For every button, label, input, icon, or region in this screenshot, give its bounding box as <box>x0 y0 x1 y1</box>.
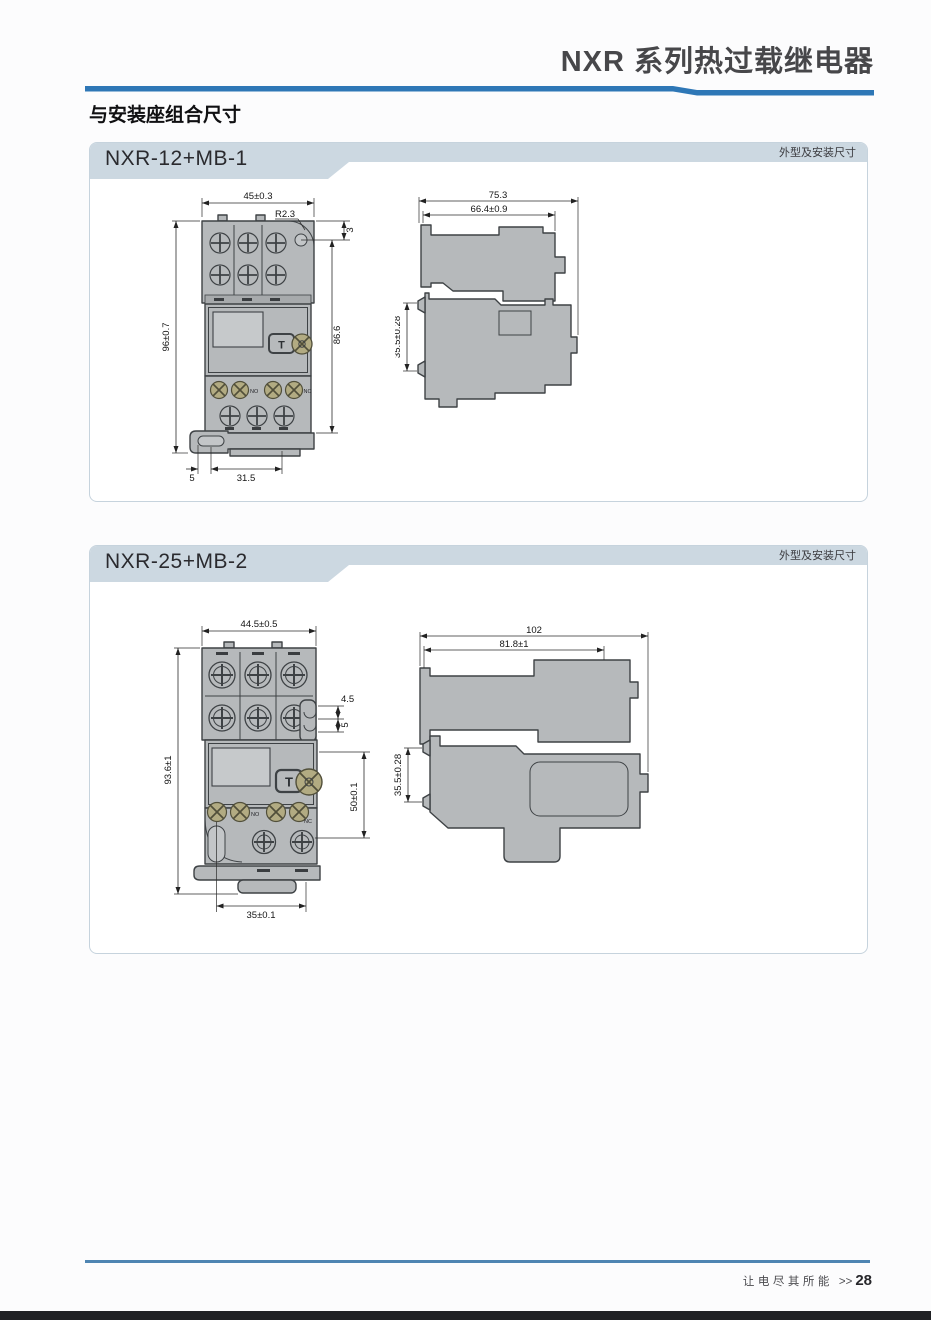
din-rail-hook <box>418 361 425 377</box>
din-rail-hook <box>423 794 430 810</box>
terminal-screw <box>266 233 286 253</box>
nxr25-side-view-drawing: 102 81.8±1 35.5±0.28 <box>390 624 670 876</box>
nxr12-side-view-drawing: 75.3 66.4±0.9 35.5±0.28 <box>395 189 607 429</box>
device-side-body <box>418 225 577 407</box>
dim-label-width: 44.5±0.5 <box>241 619 278 630</box>
aux-terminal-screw <box>232 382 249 399</box>
footer-arrows: >> <box>839 1276 852 1288</box>
device-front-body: T NO NC <box>190 215 314 456</box>
dim-label-height-total: 96±0.7 <box>161 323 172 352</box>
dim-label-depth-inner: 81.8±1 <box>500 639 529 650</box>
aux-terminal-screw <box>265 382 282 399</box>
terminal-screw <box>209 705 235 731</box>
device-side-body <box>420 660 648 862</box>
dim-label-slot-span: 31.5 <box>237 473 256 484</box>
aux-terminal-screw <box>211 382 228 399</box>
nxr25-front-view-drawing: T NO NC <box>138 612 398 924</box>
load-terminal-screw <box>291 831 314 854</box>
dim-label-hole-offset: 3 <box>345 227 356 232</box>
terminal-label-no: NO <box>250 389 259 395</box>
header-divider <box>85 86 874 96</box>
terminal-screw <box>238 233 258 253</box>
aux-terminal-screw <box>267 803 286 822</box>
mounting-ear <box>300 700 316 742</box>
terminal-label-no: NO <box>251 812 260 818</box>
footer-page-number: 28 <box>855 1272 872 1289</box>
terminal-label-nc: NC <box>304 819 312 825</box>
aux-terminal-screw <box>286 382 303 399</box>
terminal-screw <box>245 662 271 688</box>
dim-label-height-inner: 50±0.1 <box>349 783 360 812</box>
setting-window <box>213 312 263 347</box>
terminal-screw <box>281 662 307 688</box>
footer-divider <box>85 1260 870 1263</box>
dim-label-rail-height: 35.5±0.28 <box>393 754 404 796</box>
aux-terminal-screw <box>208 803 227 822</box>
load-terminal-screw <box>274 406 294 426</box>
nxr12-front-view-drawing: T NO NC 45 <box>142 183 382 485</box>
footer: 让电尽其所能>>28 <box>743 1272 872 1289</box>
terminal-screw <box>209 662 235 688</box>
dim-label-height-inner: 86.6 <box>332 326 343 345</box>
load-terminal-screw <box>247 406 267 426</box>
test-button-label: T <box>278 340 285 352</box>
catalog-page: NXR 系列热过载继电器 与安装座组合尺寸 NXR-12+MB-1 外型及安装尺… <box>0 0 931 1320</box>
dim-label-slot-offset: 5 <box>189 473 194 484</box>
dim-label-ear-offset-b: 5 <box>340 722 351 727</box>
terminal-screw <box>238 265 258 285</box>
dim-label-radius: R2.3 <box>275 209 295 220</box>
panel-title: NXR-12+MB-1 <box>105 147 248 171</box>
terminal-screw <box>210 265 230 285</box>
panel-nxr12-mb1: NXR-12+MB-1 外型及安装尺寸 <box>89 142 868 502</box>
terminal-screw <box>245 705 271 731</box>
test-button-label: T <box>285 775 293 790</box>
terminal-screw <box>210 233 230 253</box>
load-terminal-screw <box>220 406 240 426</box>
setting-window <box>212 748 270 786</box>
rotary-dial-icon <box>292 334 312 354</box>
dim-label-slot-span: 35±0.1 <box>247 910 276 921</box>
section-title: 与安装座组合尺寸 <box>89 100 241 127</box>
din-rail-hook <box>418 297 425 313</box>
panel-nxr25-mb2: NXR-25+MB-2 外型及安装尺寸 <box>89 545 868 954</box>
dim-label-rail-height: 35.5±0.28 <box>395 316 403 358</box>
aux-terminal-screw <box>231 803 250 822</box>
dim-label-height-total: 93.6±1 <box>163 756 174 785</box>
dim-label-width: 45±0.3 <box>244 191 273 202</box>
panel-corner-label: 外型及安装尺寸 <box>779 546 856 565</box>
panel-title: NXR-25+MB-2 <box>105 550 248 574</box>
dim-label-depth-total: 102 <box>526 625 542 636</box>
dim-label-depth-total: 75.3 <box>489 190 508 201</box>
page-title: NXR 系列热过载继电器 <box>561 38 874 80</box>
load-terminal-screw <box>253 831 276 854</box>
dim-label-ear-offset-a: 4.5 <box>341 694 354 705</box>
page-bottom-bar <box>0 1311 931 1320</box>
terminal-label-nc: NC <box>304 389 312 395</box>
footer-tagline: 让电尽其所能 <box>743 1276 833 1288</box>
dim-label-depth-inner: 66.4±0.9 <box>471 204 508 215</box>
terminal-screw <box>266 265 286 285</box>
panel-corner-label: 外型及安装尺寸 <box>779 143 856 162</box>
rotary-dial-icon <box>296 769 322 795</box>
mounting-slot <box>198 436 224 446</box>
device-front-body: T NO NC <box>194 642 322 893</box>
